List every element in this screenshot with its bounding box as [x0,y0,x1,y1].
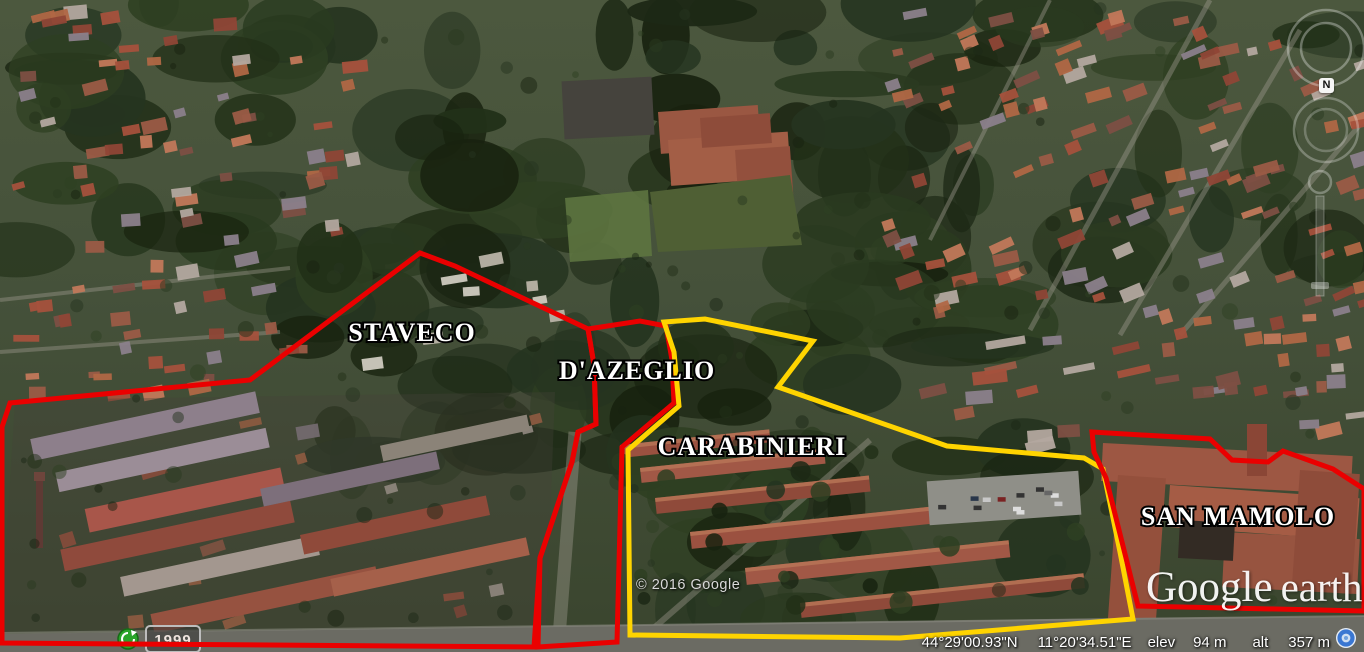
logo-earth-text: earth [1281,564,1363,610]
elevation-value: 94 m [1193,634,1226,651]
status-globe-icon [1335,627,1357,649]
alt-label: alt [1252,634,1268,651]
aerial-imagery: 1999STAVECOD'AZEGLIOCARABINIERISAN MAMOL… [0,0,1364,652]
altitude-value: 357 m [1288,634,1330,651]
status-bar: 44°29'00.93"N 11°20'34.51"E elev 94 m al… [922,634,1330,651]
historical-imagery-chip[interactable]: 1999 [118,626,200,652]
zone-label-dazeglio: D'AZEGLIO [559,356,715,385]
google-earth-logo: Googleearth [1146,563,1363,612]
google-earth-viewport: 1999STAVECOD'AZEGLIOCARABINIERISAN MAMOL… [0,0,1364,652]
logo-google-text: Google [1146,564,1273,611]
longitude-readout: 11°20'34.51"E [1038,634,1132,651]
zone-label-staveco: STAVECO [348,318,475,347]
zone-label-san-mamolo: SAN MAMOLO [1141,502,1335,531]
elev-label: elev [1148,634,1176,651]
zone-label-carabinieri: CARABINIERI [658,432,847,461]
copyright-notice: © 2016 Google [636,577,740,593]
latitude-readout: 44°29'00.93"N [922,634,1018,651]
